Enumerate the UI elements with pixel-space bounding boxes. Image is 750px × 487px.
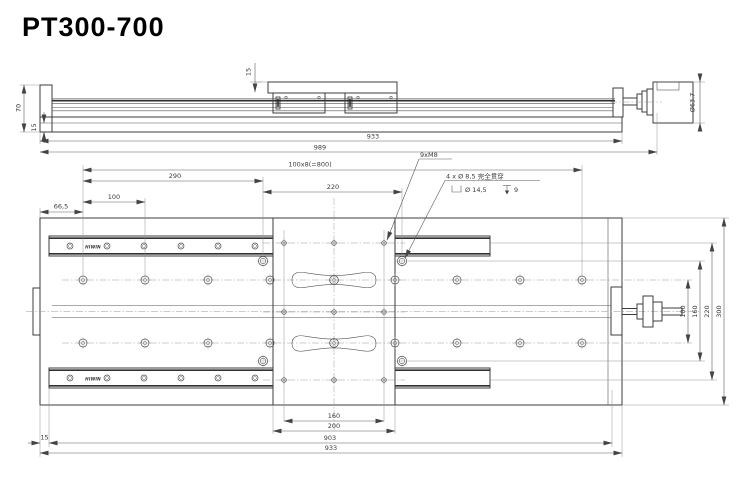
dim-right-160: 160: [691, 305, 699, 317]
dim-bottom-903: 903: [324, 434, 336, 442]
dim-bottom-200: 200: [328, 422, 340, 430]
dim-right-300: 300: [715, 305, 723, 317]
counterbore-depth-label: 9: [514, 186, 518, 194]
dim-overall-height: 70: [15, 104, 23, 112]
plan-rail-top: [49, 236, 490, 256]
rail-brand-label-bottom: HIWIN: [85, 376, 101, 381]
dim-base-thickness: 15: [30, 123, 38, 131]
counterbore-symbol: [452, 186, 461, 193]
plan-bottom-dims: 160 200 903 15 933: [28, 230, 622, 457]
side-motor-connector: [657, 82, 679, 90]
dim-bottom-933: 933: [325, 444, 337, 452]
dim-290: 290: [169, 172, 181, 180]
dim-right-220: 220: [703, 305, 711, 317]
drawing-title: PT300-700: [22, 12, 165, 43]
side-carriage: [268, 82, 397, 113]
hole-callouts: 9xM8 4 x Ø 8,5 完全贯穿 Ø 14,5 9: [387, 151, 540, 258]
plan-rail-bottom: [49, 368, 490, 388]
dim-100-top: 100: [108, 193, 120, 201]
plan-bearing-block: [611, 287, 622, 335]
side-motor-assembly: [610, 82, 693, 123]
side-carriage-block-2: [345, 93, 397, 113]
side-carriage-block-1: [273, 93, 325, 113]
dim-hole-pattern: 100x8(=800): [288, 161, 331, 169]
side-rail: [52, 99, 615, 111]
rail-holes: [67, 243, 258, 381]
plan-view: HIWIN HIWIN: [26, 151, 729, 457]
side-shaft: [623, 98, 637, 105]
dim-rail-inset: 15: [40, 434, 48, 442]
dim-total-length: 989: [314, 144, 326, 152]
dim-bottom-160: 160: [328, 412, 340, 420]
dim-body-length: 933: [367, 133, 379, 141]
side-view: 70 15 15 933 989: [15, 63, 706, 155]
dim-220: 220: [327, 183, 339, 191]
counterbore-dia-label: Ø 14,5: [465, 186, 487, 194]
dim-carriage-height: 15: [245, 68, 253, 76]
side-dims: 70 15 15 933 989: [15, 63, 706, 155]
rail-brand-label-top: HIWIN: [85, 244, 101, 249]
drawing-page: PT300-700: [0, 0, 750, 487]
depth-symbol: [503, 186, 511, 195]
side-motor-body: [653, 82, 693, 123]
dim-right-100: 100: [679, 305, 687, 317]
side-base-plate: [40, 117, 622, 132]
dim-left-margin: 66,5: [54, 203, 68, 211]
technical-drawing: 70 15 15 933 989: [0, 0, 750, 487]
dim-motor-diameter: Ø63.7: [689, 93, 697, 113]
side-carriage-plate: [268, 82, 397, 93]
side-left-end-plate: [40, 85, 52, 132]
counterbore-callout-line1: 4 x Ø 8,5 完全贯穿: [446, 172, 504, 181]
side-bearing-block: [613, 88, 623, 117]
m8-callout-label: 9xM8: [420, 151, 438, 159]
